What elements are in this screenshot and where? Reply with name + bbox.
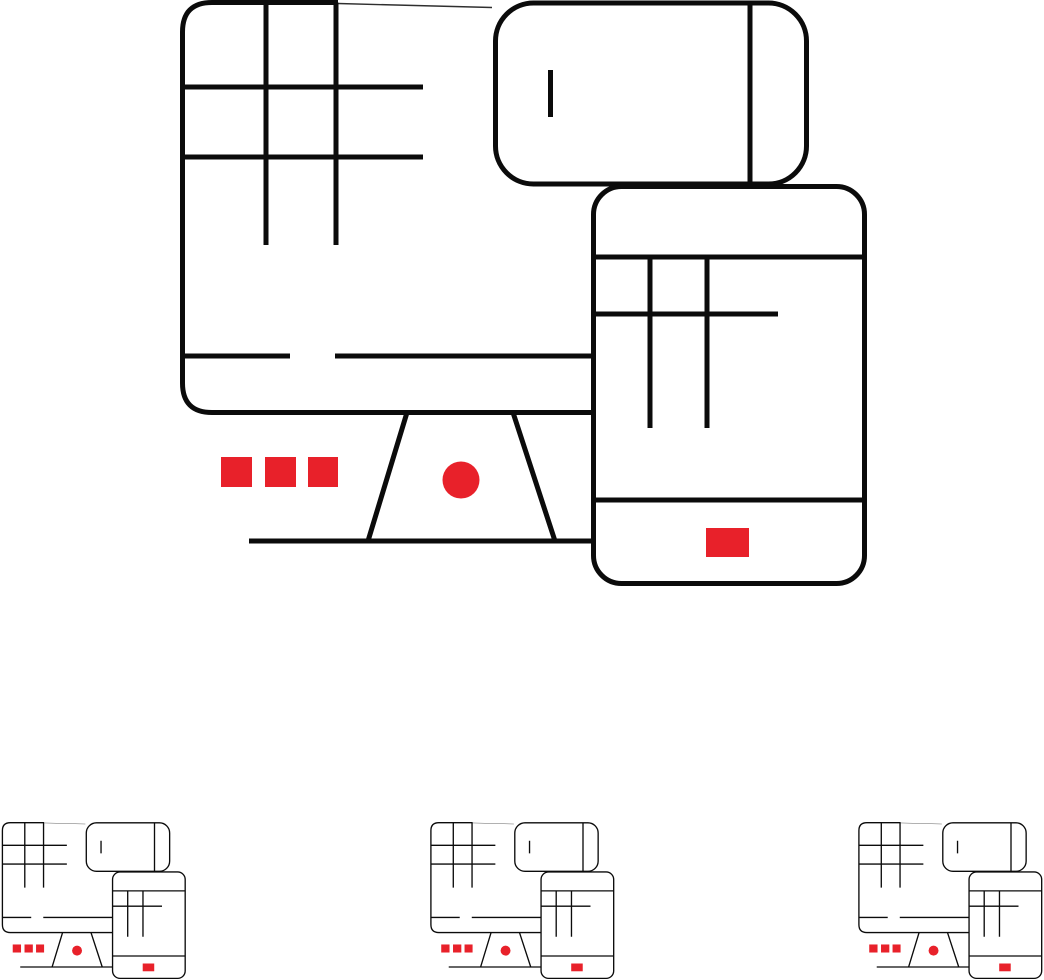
thumbnail-left[interactable] [2, 823, 185, 979]
thumbnail-right[interactable] [859, 823, 1042, 979]
artwork-canvas [0, 0, 1044, 980]
main-icon [182, 3, 865, 584]
icon-sheet [0, 0, 1044, 980]
thumbnail-center[interactable] [431, 823, 614, 979]
